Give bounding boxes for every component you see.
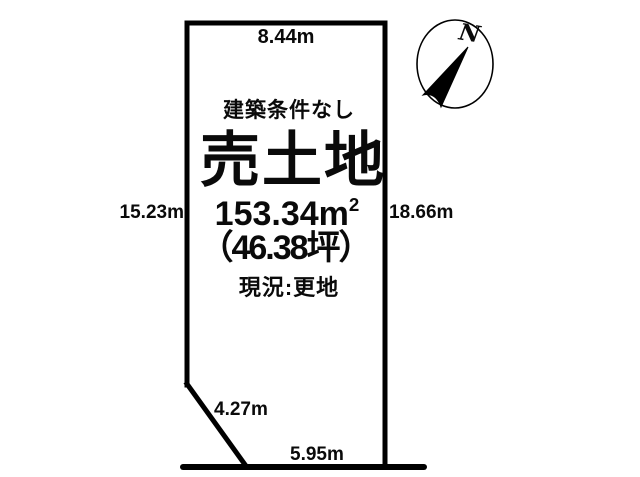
land-plot-diagram: 8.44m 15.23m 18.66m 4.27m 5.95m 建築条件なし 売… bbox=[0, 0, 640, 477]
dimension-bottom-label: 5.95m bbox=[290, 445, 344, 464]
dimension-diagonal-label: 4.27m bbox=[214, 400, 268, 419]
current-status-label: 現況:更地 bbox=[187, 277, 391, 299]
dimension-top-label: 8.44m bbox=[187, 27, 385, 47]
area-square-meters-label: 153.34m2 bbox=[187, 197, 387, 231]
area-superscript: 2 bbox=[349, 194, 359, 215]
land-for-sale-title: 売土地 bbox=[190, 131, 396, 191]
dimension-left-label: 15.23m bbox=[98, 203, 184, 222]
compass bbox=[417, 20, 493, 108]
compass-north-label: N bbox=[457, 20, 481, 46]
area-tsubo-label: （46.38坪） bbox=[177, 231, 393, 265]
plot-diagonal-edge bbox=[187, 384, 246, 466]
dimension-right-label: 18.66m bbox=[389, 203, 453, 222]
area-square-meters-value: 153.34m bbox=[215, 195, 349, 233]
building-condition-label: 建築条件なし bbox=[187, 100, 391, 121]
